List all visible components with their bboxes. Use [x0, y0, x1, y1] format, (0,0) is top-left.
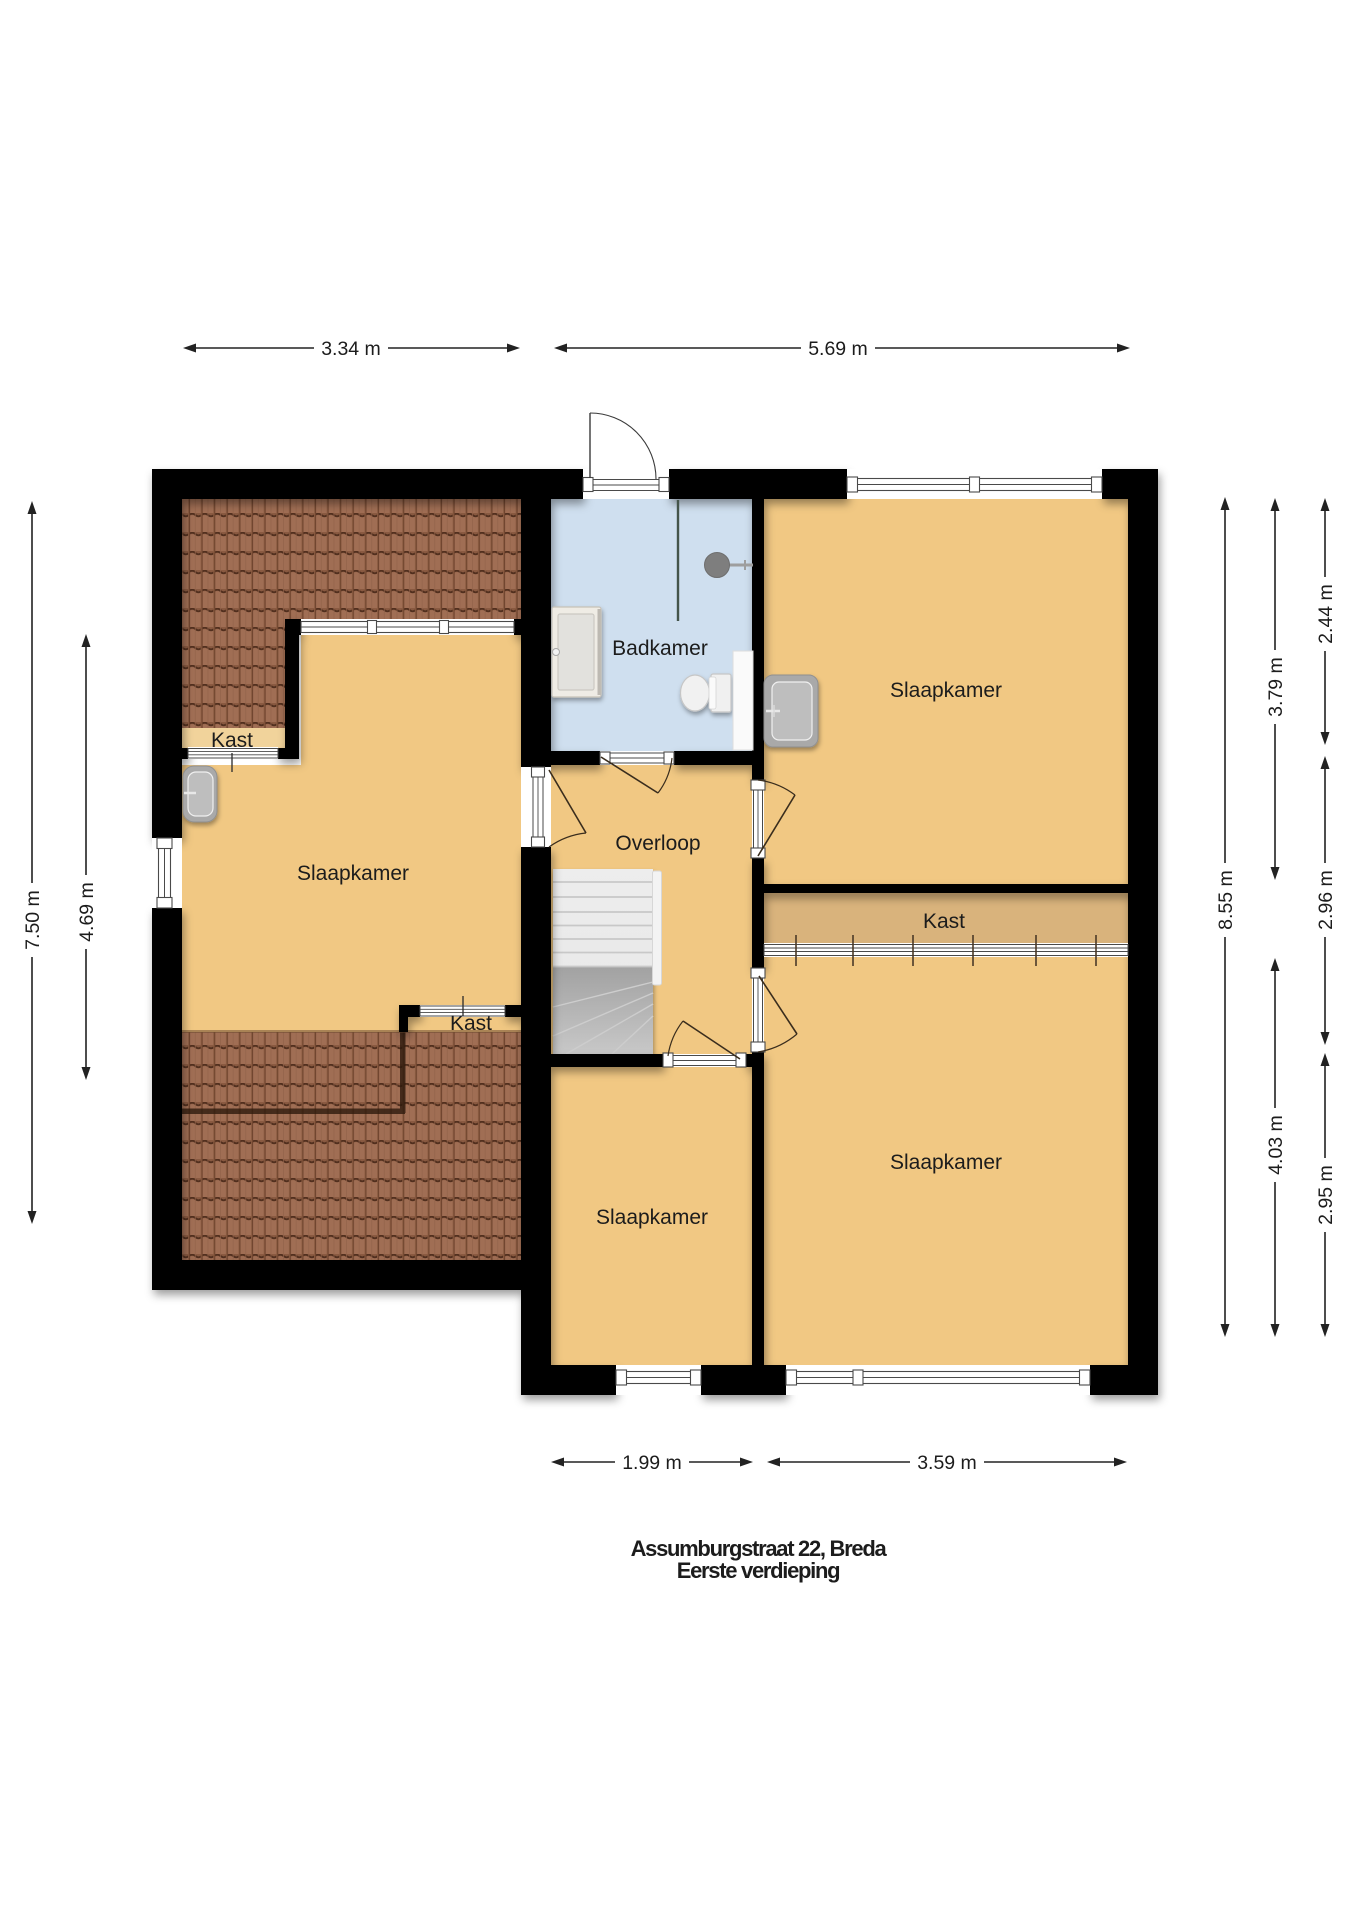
svg-text:Overloop: Overloop	[615, 832, 700, 855]
svg-text:4.03 m: 4.03 m	[1265, 1115, 1287, 1175]
svg-text:Kast: Kast	[450, 1012, 492, 1035]
svg-text:7.50 m: 7.50 m	[22, 890, 44, 950]
svg-text:2.96 m: 2.96 m	[1315, 870, 1337, 930]
svg-text:2.44 m: 2.44 m	[1315, 584, 1337, 644]
svg-text:3.59 m: 3.59 m	[917, 1452, 977, 1474]
svg-text:2.95 m: 2.95 m	[1315, 1165, 1337, 1225]
svg-text:Eerste verdieping: Eerste verdieping	[677, 1558, 840, 1583]
svg-text:Badkamer: Badkamer	[612, 637, 708, 660]
svg-text:Slaapkamer: Slaapkamer	[596, 1206, 708, 1229]
svg-text:3.34 m: 3.34 m	[321, 338, 381, 360]
svg-text:Slaapkamer: Slaapkamer	[890, 1151, 1002, 1174]
svg-text:3.79 m: 3.79 m	[1265, 657, 1287, 717]
svg-text:Kast: Kast	[923, 910, 965, 933]
svg-text:5.69 m: 5.69 m	[808, 338, 868, 360]
svg-text:8.55 m: 8.55 m	[1215, 870, 1237, 930]
svg-text:Slaapkamer: Slaapkamer	[890, 679, 1002, 702]
svg-text:1.99 m: 1.99 m	[622, 1452, 682, 1474]
svg-text:Kast: Kast	[211, 729, 253, 752]
svg-text:4.69 m: 4.69 m	[76, 882, 98, 942]
svg-text:Slaapkamer: Slaapkamer	[297, 862, 409, 885]
